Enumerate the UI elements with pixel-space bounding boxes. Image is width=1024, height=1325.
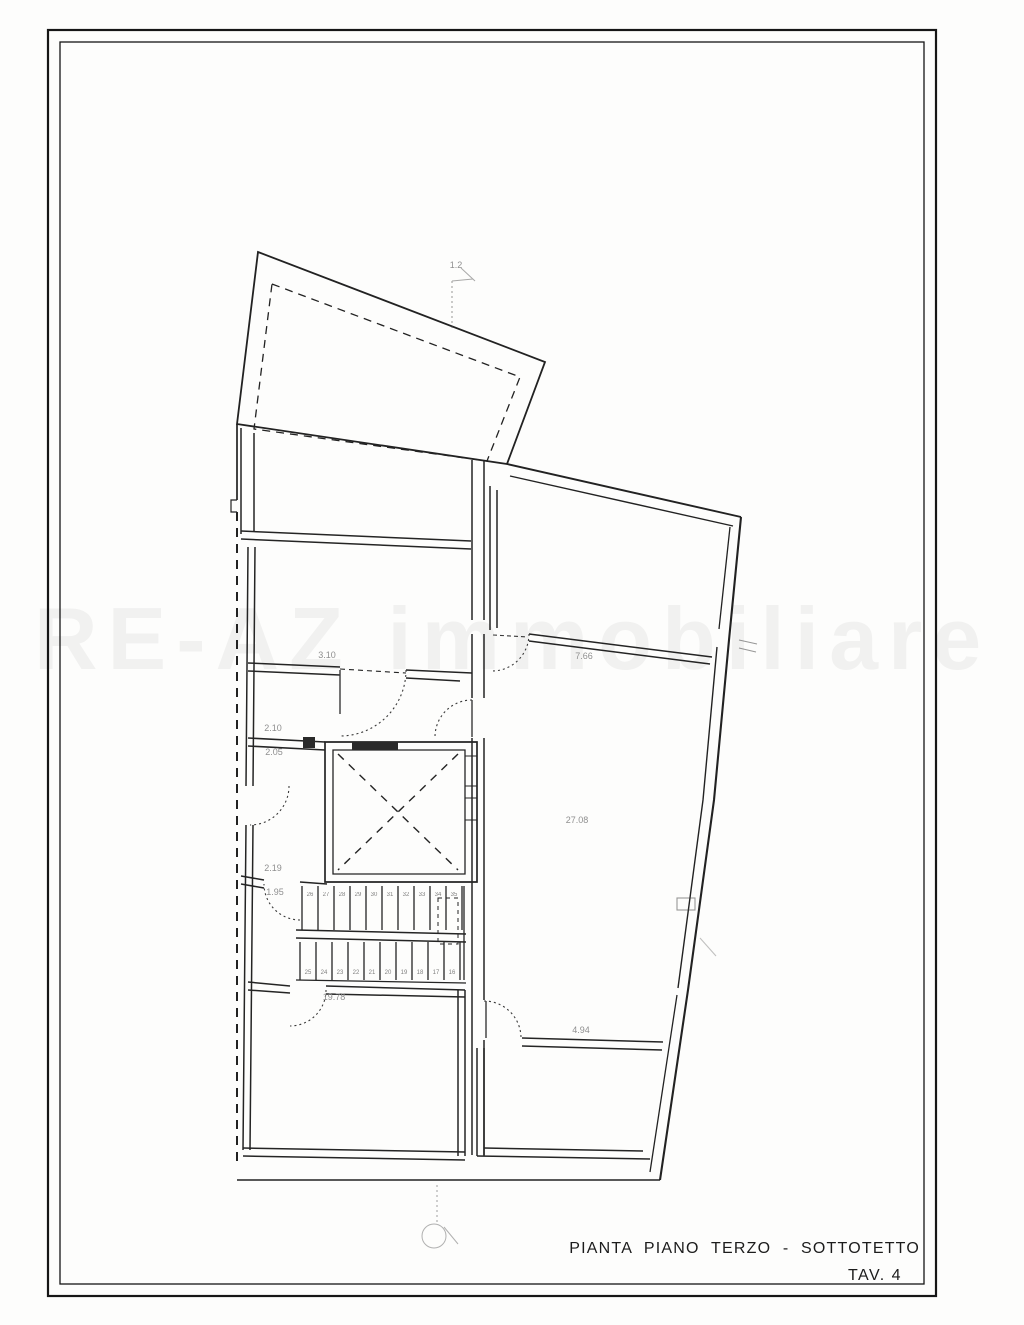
staircase [296,886,466,983]
svg-text:26: 26 [307,892,314,898]
door-swings [250,634,529,1038]
label-room-se: 4.94 [572,1025,590,1035]
svg-text:33: 33 [419,892,426,898]
svg-text:29: 29 [355,892,362,898]
property-boundary [231,424,741,1180]
svg-text:35: 35 [451,892,458,898]
svg-text:20: 20 [385,970,392,976]
section-marker-bottom [422,1185,458,1248]
svg-text:31: 31 [387,892,394,898]
label-living: 27.08 [566,815,589,825]
svg-text:22: 22 [353,970,360,976]
sheet-border-frame [48,30,936,1296]
stair-rail-dashed [438,898,458,944]
svg-text:28: 28 [339,892,346,898]
label-corr-1: 2.10 [264,723,282,733]
title-block: PIANTA PIANO TERZO - SOTTOTETTO TAV. 4 [569,1235,920,1289]
drawing-title: PIANTA PIANO TERZO - SOTTOTETTO [569,1235,920,1262]
svg-text:32: 32 [403,892,410,898]
section-marker-top [452,268,475,330]
svg-text:19: 19 [401,970,408,976]
svg-text:27: 27 [323,892,330,898]
label-corr-2: 2.05 [265,747,283,757]
svg-text:25: 25 [305,970,312,976]
label-room-b: 3.10 [318,650,336,660]
svg-text:23: 23 [337,970,344,976]
label-hall-1: 2.19 [264,863,282,873]
label-right-top: 7.66 [575,651,593,661]
label-section-top: 1.2 [450,260,463,270]
label-hall-2: 1.95 [266,887,284,897]
svg-text:34: 34 [435,892,442,898]
label-room-sw: 19.78 [323,992,346,1002]
svg-text:16: 16 [449,970,456,976]
dimension-labels: 1.2 3.10 2.10 2.05 2.19 1.95 7.66 27.08 … [264,260,593,1035]
drawing-sheet: RE-AZ immobiliare [0,0,1024,1325]
drawing-sheet-number: TAV. 4 [569,1262,920,1289]
svg-text:18: 18 [417,970,424,976]
roof-terrace-outline [237,252,545,464]
svg-text:21: 21 [369,970,376,976]
svg-text:30: 30 [371,892,378,898]
void-shaft [303,737,477,882]
svg-text:17: 17 [433,970,440,976]
svg-text:24: 24 [321,970,328,976]
floor-plan-drawing: 1.2 3.10 2.10 2.05 2.19 1.95 7.66 27.08 … [0,0,1024,1325]
